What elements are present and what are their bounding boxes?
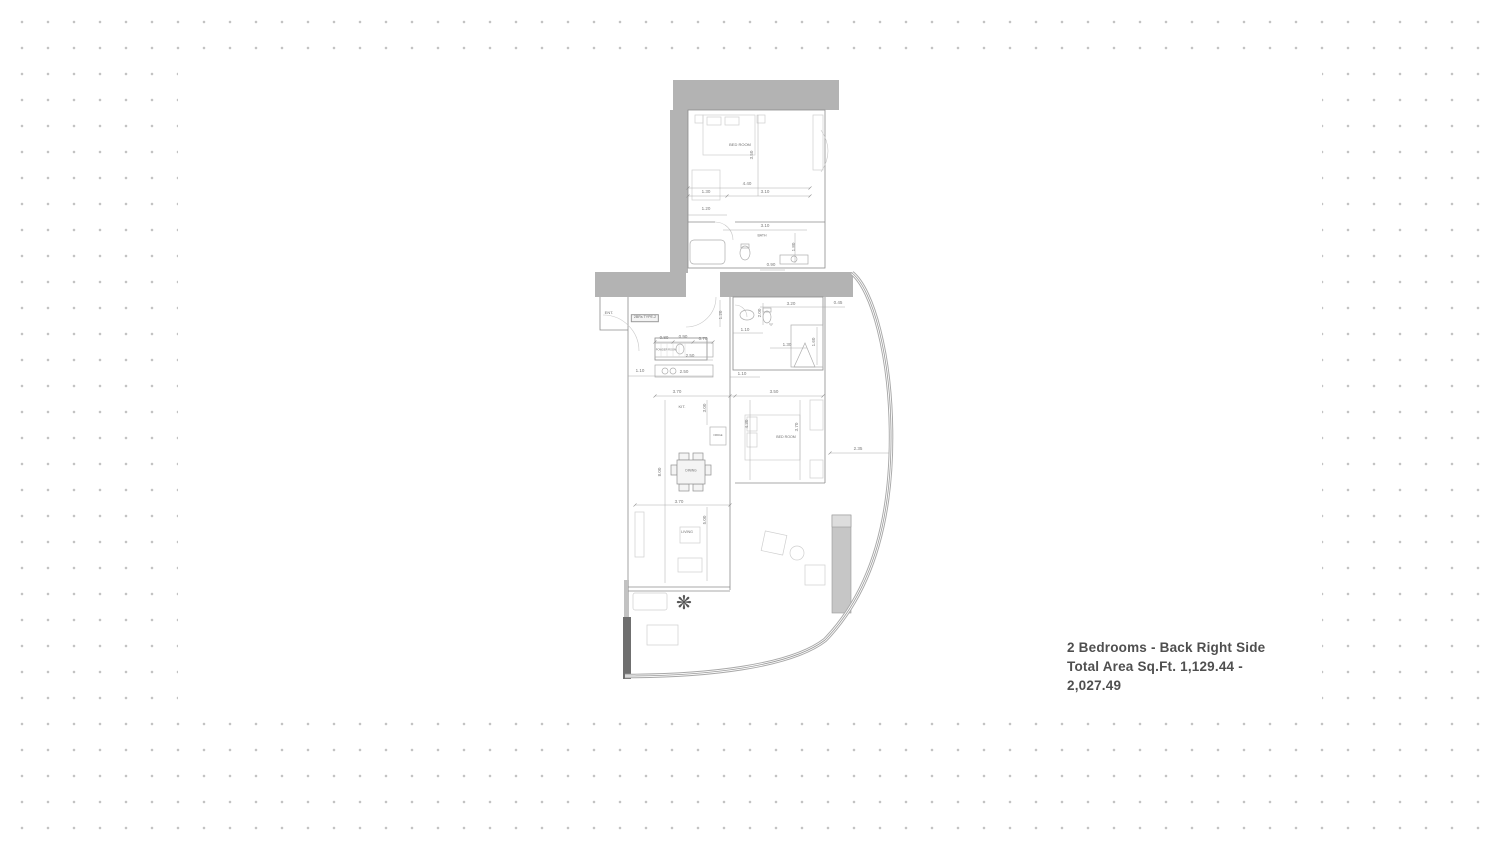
- room-label: BED ROOM: [776, 436, 796, 440]
- dimension-label: 2.50: [686, 354, 695, 359]
- dimension-label: 0.90: [767, 263, 776, 268]
- dimension-label: 1.20: [719, 311, 724, 320]
- plan-board: ❋ 4.401.303.103.501.203.101.800.903.200.…: [178, 52, 1322, 716]
- dimension-label: 3.70: [673, 390, 682, 395]
- dimension-label: 1.80: [792, 243, 797, 252]
- dimension-label: 3.50: [750, 151, 755, 160]
- dimension-label: 3.70: [795, 423, 800, 432]
- room-label: BATH: [757, 234, 766, 238]
- dimension-label: 8.00: [658, 468, 663, 477]
- dimension-label: 1.10: [636, 369, 645, 374]
- dimension-label: 0.45: [834, 301, 843, 306]
- room-label: POWDER ROOM: [656, 350, 676, 353]
- dimension-label: 1.30: [783, 343, 792, 348]
- dimension-label: 3.20: [787, 302, 796, 307]
- room-label: BED ROOM: [729, 143, 751, 147]
- dimension-label: 3.10: [761, 224, 770, 229]
- room-label: FRIDGE: [713, 435, 722, 437]
- dimension-label: 4.30: [745, 420, 750, 429]
- dimension-label: 3.50: [770, 390, 779, 395]
- dimension-label: 2.00: [758, 309, 763, 318]
- dotted-background: ❋ 4.401.303.103.501.203.101.800.903.200.…: [0, 0, 1500, 842]
- caption-area: Total Area Sq.Ft. 1,129.44 - 2,027.49: [1067, 657, 1297, 695]
- dimension-label: 0.70: [699, 337, 708, 342]
- dimension-label: 1.60: [812, 338, 817, 347]
- dimension-label: 4.40: [743, 182, 752, 187]
- dimension-label: 0.90: [679, 335, 688, 340]
- dimension-label: 3.10: [761, 190, 770, 195]
- unit-type-label: 2BRs TYPE-2: [631, 314, 659, 322]
- room-label: ENT.: [605, 311, 614, 315]
- plan-labels-layer: 4.401.303.103.501.203.101.800.903.200.45…: [595, 75, 900, 687]
- dimension-label: 1.10: [741, 328, 750, 333]
- dimension-label: 0.80: [660, 336, 669, 341]
- dimension-label: 1.20: [702, 207, 711, 212]
- room-label: LIVING: [681, 531, 693, 535]
- dimension-label: 1.10: [738, 372, 747, 377]
- dimension-label: 1.30: [702, 190, 711, 195]
- dimension-label: 2.35: [854, 447, 863, 452]
- dimension-label: 5.00: [703, 516, 708, 525]
- floor-plan: ❋ 4.401.303.103.501.203.101.800.903.200.…: [595, 75, 900, 687]
- room-label: DINING: [685, 469, 696, 472]
- dimension-label: 3.00: [703, 404, 708, 413]
- room-label: KIT.: [679, 405, 686, 409]
- room-label: *S*: [769, 324, 773, 327]
- dimension-label: 2.50: [680, 370, 689, 375]
- plan-caption: 2 Bedrooms - Back Right Side Total Area …: [1067, 638, 1297, 695]
- caption-title: 2 Bedrooms - Back Right Side: [1067, 638, 1297, 657]
- dimension-label: 3.70: [675, 500, 684, 505]
